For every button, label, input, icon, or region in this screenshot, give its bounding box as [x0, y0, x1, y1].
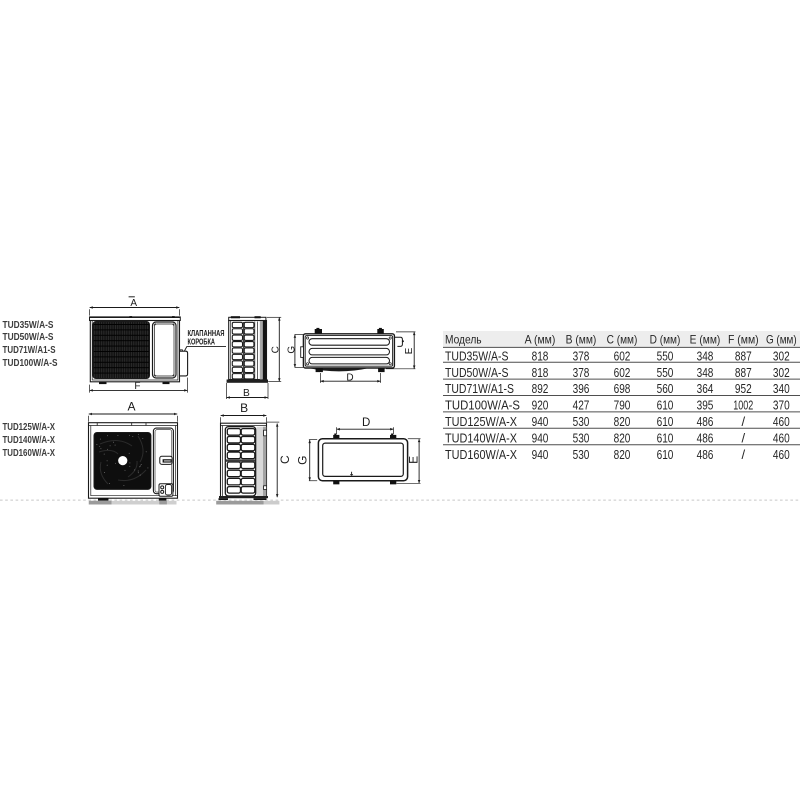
svg-text:C: C: [271, 346, 282, 353]
svg-text:B (мм): B (мм): [566, 333, 597, 347]
svg-text:D: D: [346, 373, 353, 384]
svg-text:E: E: [404, 347, 415, 354]
svg-text:378: 378: [573, 348, 590, 363]
svg-text:427: 427: [573, 398, 590, 413]
svg-text:E (мм): E (мм): [690, 333, 721, 347]
svg-text:395: 395: [697, 398, 714, 413]
svg-text:340: 340: [773, 381, 790, 396]
svg-text:TUD140W/A-X: TUD140W/A-X: [445, 432, 518, 446]
svg-text:952: 952: [735, 381, 752, 396]
svg-text:302: 302: [773, 348, 790, 363]
svg-text:TUD160W/A-X: TUD160W/A-X: [3, 448, 56, 459]
svg-text:887: 887: [735, 348, 752, 363]
svg-text:C: C: [278, 455, 292, 464]
svg-text:B: B: [240, 401, 248, 415]
svg-text:698: 698: [614, 381, 631, 396]
svg-text:610: 610: [657, 431, 674, 446]
svg-text:602: 602: [614, 365, 631, 380]
svg-text:550: 550: [657, 365, 674, 380]
svg-text:КОРОБКА: КОРОБКА: [188, 337, 216, 346]
svg-text:TUD125W/A-X: TUD125W/A-X: [445, 415, 518, 429]
svg-text:A (мм): A (мм): [525, 333, 556, 347]
svg-text:TUD35W/A-S: TUD35W/A-S: [445, 349, 509, 363]
svg-text:TUD35W/A-S: TUD35W/A-S: [3, 320, 54, 331]
svg-text:820: 820: [614, 431, 631, 446]
svg-text:602: 602: [614, 348, 631, 363]
svg-text:610: 610: [657, 398, 674, 413]
svg-text:/: /: [741, 414, 745, 429]
svg-text:E: E: [406, 456, 420, 464]
svg-text:TUD160W/A-X: TUD160W/A-X: [445, 448, 518, 462]
svg-text:940: 940: [532, 414, 549, 429]
svg-text:378: 378: [573, 365, 590, 380]
svg-text:TUD100W/A-S: TUD100W/A-S: [3, 358, 58, 369]
svg-text:486: 486: [697, 414, 714, 429]
svg-text:460: 460: [773, 414, 790, 429]
svg-text:TUD50W/A-S: TUD50W/A-S: [3, 332, 54, 343]
svg-text:G: G: [296, 456, 310, 465]
svg-text:818: 818: [532, 348, 549, 363]
svg-text:790: 790: [614, 398, 631, 413]
svg-text:610: 610: [657, 414, 674, 429]
svg-text:530: 530: [573, 447, 590, 462]
svg-text:820: 820: [614, 414, 631, 429]
svg-text:610: 610: [657, 447, 674, 462]
svg-text:TUD50W/A-S: TUD50W/A-S: [445, 366, 509, 380]
svg-text:TUD71W/A1-S: TUD71W/A1-S: [3, 345, 56, 356]
svg-text:892: 892: [532, 381, 549, 396]
svg-text:D (мм): D (мм): [650, 333, 681, 347]
svg-text:G (мм): G (мм): [766, 333, 797, 347]
svg-text:820: 820: [614, 447, 631, 462]
svg-text:364: 364: [697, 381, 714, 396]
svg-text:460: 460: [773, 431, 790, 446]
svg-text:TUD100W/A-S: TUD100W/A-S: [445, 399, 520, 413]
svg-text:TUD71W/A1-S: TUD71W/A1-S: [445, 382, 514, 396]
svg-text:F (мм): F (мм): [728, 333, 759, 347]
svg-text:940: 940: [532, 447, 549, 462]
svg-text:C (мм): C (мм): [607, 333, 638, 347]
svg-text:887: 887: [735, 365, 752, 380]
svg-text:348: 348: [697, 348, 714, 363]
svg-text:D: D: [362, 417, 370, 429]
svg-text:530: 530: [573, 431, 590, 446]
svg-text:396: 396: [573, 381, 590, 396]
svg-text:348: 348: [697, 365, 714, 380]
svg-text:460: 460: [773, 447, 790, 462]
svg-text:/: /: [741, 431, 745, 446]
svg-text:920: 920: [532, 398, 549, 413]
svg-text:370: 370: [773, 398, 790, 413]
svg-text:818: 818: [532, 365, 549, 380]
svg-text:486: 486: [697, 431, 714, 446]
svg-text:550: 550: [657, 348, 674, 363]
svg-text:/: /: [741, 447, 745, 462]
svg-text:486: 486: [697, 447, 714, 462]
svg-text:302: 302: [773, 365, 790, 380]
svg-text:TUD140W/A-X: TUD140W/A-X: [3, 435, 56, 446]
svg-text:560: 560: [657, 381, 674, 396]
svg-text:530: 530: [573, 414, 590, 429]
svg-text:Модель: Модель: [445, 333, 482, 347]
svg-text:G: G: [287, 346, 298, 354]
svg-text:A: A: [127, 399, 135, 413]
svg-text:1002: 1002: [733, 398, 753, 413]
svg-text:940: 940: [532, 431, 549, 446]
svg-text:TUD125W/A-X: TUD125W/A-X: [3, 422, 56, 433]
